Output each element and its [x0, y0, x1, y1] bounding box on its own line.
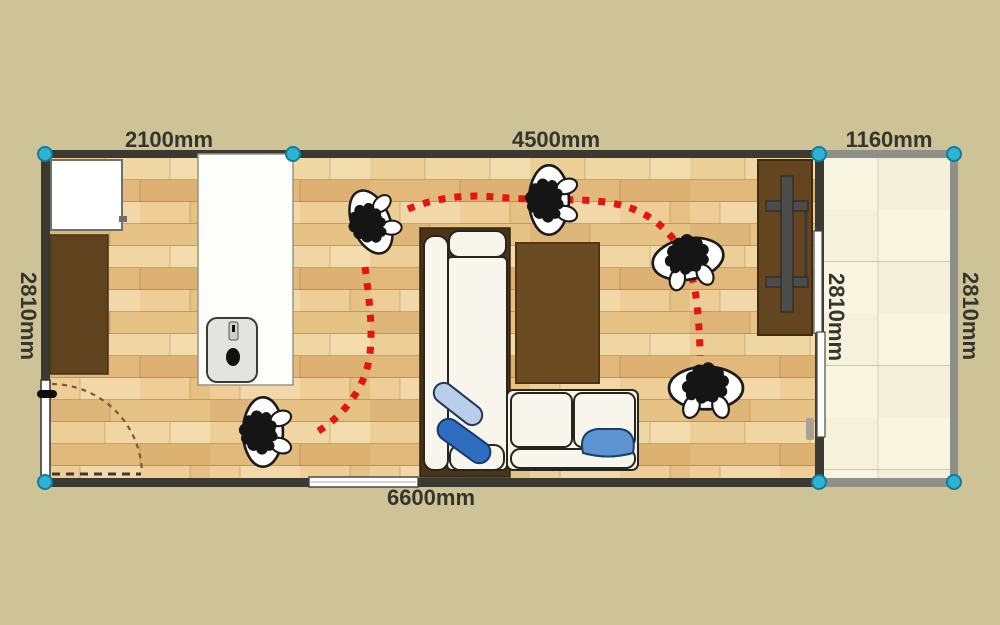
tv-screen-bar — [781, 176, 793, 312]
dim-top-left: 2100mm — [125, 127, 213, 152]
balcony-wall-bottom — [824, 478, 958, 487]
sliding-door-stopper — [806, 418, 814, 440]
corner-marker — [812, 147, 826, 161]
dim-bottom-total: 6600mm — [387, 485, 475, 510]
drain — [226, 348, 240, 366]
corner-marker — [947, 475, 961, 489]
faucet-slot — [232, 325, 235, 332]
refrigerator — [51, 160, 122, 230]
dim-top-right: 1160mm — [846, 127, 933, 152]
corner-marker — [38, 147, 52, 161]
sofa-top-backrest — [449, 231, 506, 257]
wall-cabinet — [50, 235, 108, 374]
balcony-wall-right — [950, 150, 958, 487]
corner-marker — [38, 475, 52, 489]
corner-marker — [812, 475, 826, 489]
sliding-door-panel-1 — [814, 231, 822, 333]
dim-right-height: 2810mm — [958, 272, 983, 360]
cushion-mid-blue — [582, 429, 634, 457]
floor-plan-svg: 2100mm 4500mm 1160mm 6600mm 2810mm 2810m… — [0, 0, 1000, 625]
dim-left-height: 2810mm — [16, 272, 41, 360]
refrigerator-handle — [119, 216, 127, 222]
sink — [207, 318, 257, 382]
tv-stand — [758, 160, 812, 335]
area-rug — [516, 243, 599, 383]
dim-divider-height: 2810mm — [824, 273, 849, 361]
dim-top-middle: 4500mm — [512, 127, 600, 152]
floor-plan-screenshot: 2100mm 4500mm 1160mm 6600mm 2810mm 2810m… — [0, 0, 1000, 625]
sofa-seat-cushion-1 — [511, 393, 572, 447]
corner-marker — [947, 147, 961, 161]
corner-marker — [286, 147, 300, 161]
sliding-door-panel-2 — [817, 332, 825, 437]
door-hinge-marker — [37, 390, 57, 398]
